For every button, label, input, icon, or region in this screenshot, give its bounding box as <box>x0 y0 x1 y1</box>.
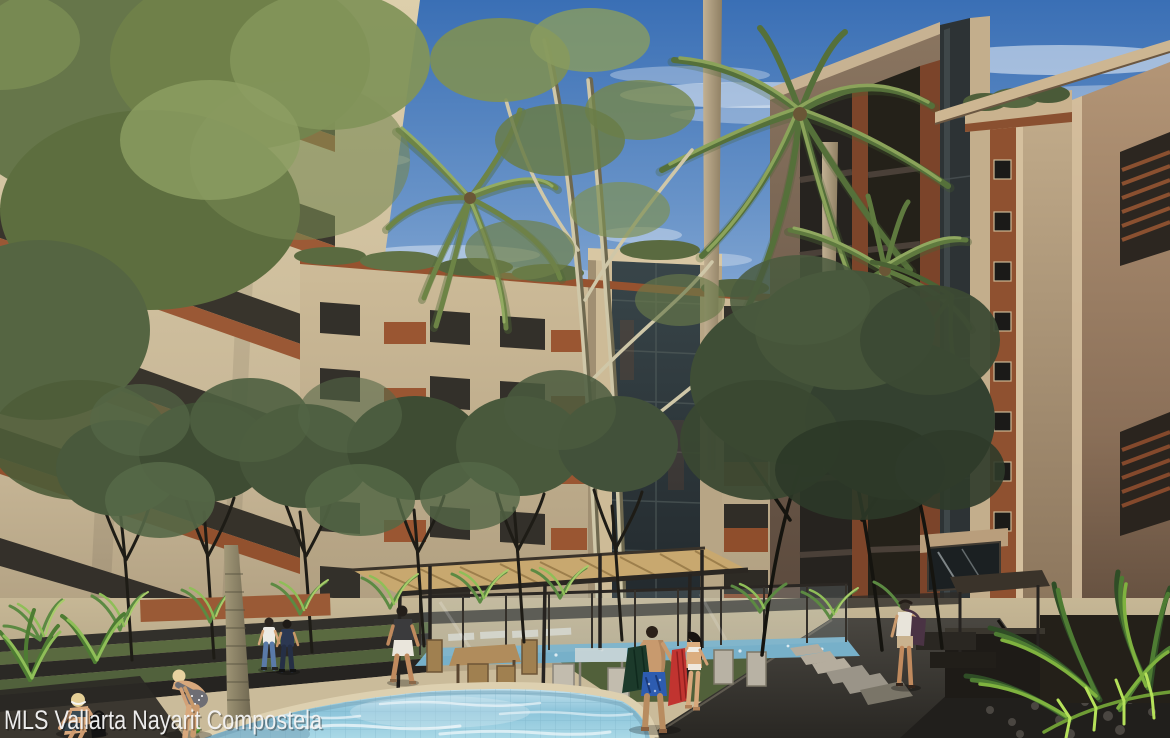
rendered-photo: MLS Vallarta Nayarit Compostela MLS Vall… <box>0 0 1170 738</box>
daybed <box>916 632 976 650</box>
watermark-text: MLS Vallarta Nayarit Compostela <box>4 705 323 735</box>
watermark: MLS Vallarta Nayarit Compostela MLS Vall… <box>4 705 324 737</box>
daybed <box>930 652 996 668</box>
